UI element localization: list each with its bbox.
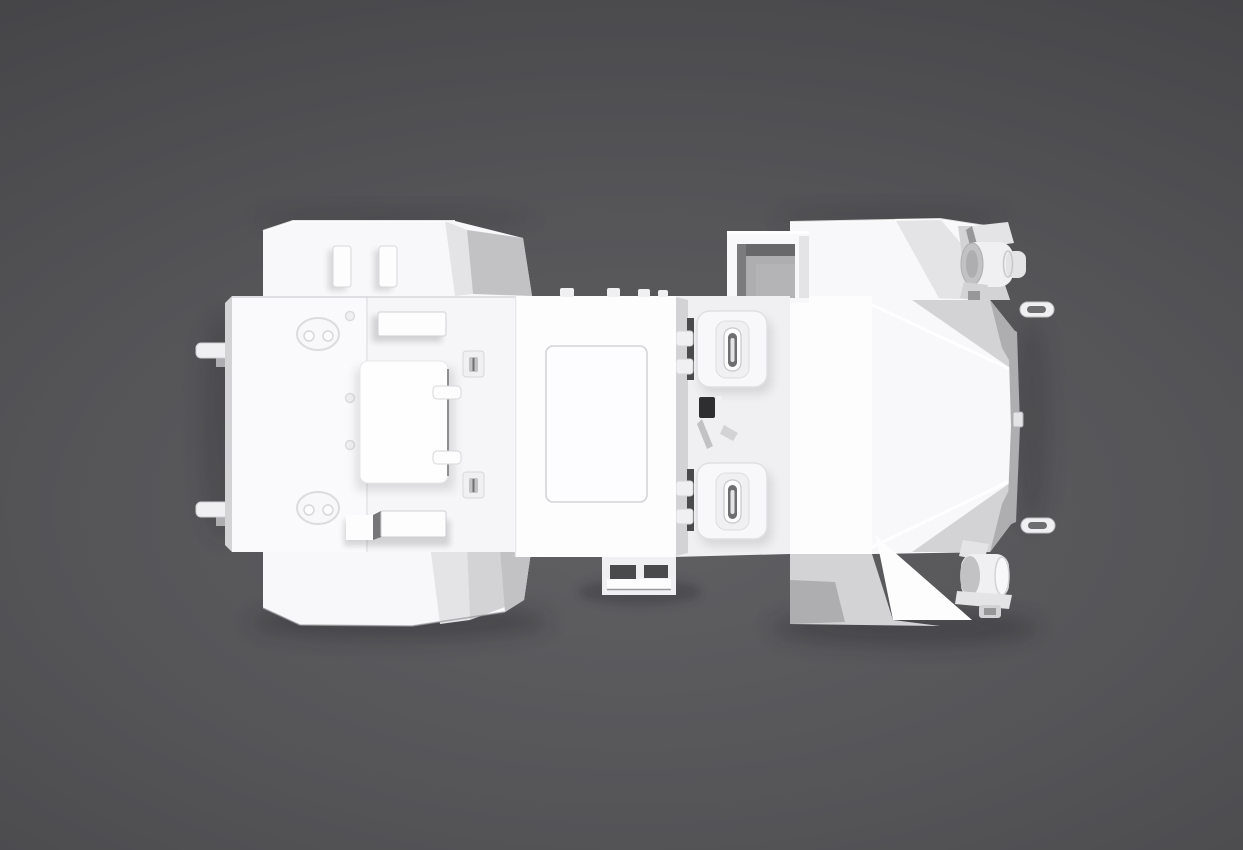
roof-edge-tabs (560, 288, 668, 297)
latch-block-upper (463, 351, 484, 377)
hatch-rear-slot-core (731, 490, 735, 514)
rear-deck (790, 296, 872, 554)
stowage-box-top (378, 312, 446, 336)
roof-tab-4 (658, 290, 668, 297)
plate-bolt-1 (346, 312, 355, 321)
stowage-cube (346, 515, 373, 540)
cabin-roof (515, 288, 676, 595)
plate-bolt-3 (346, 441, 355, 450)
drum-lower-face (960, 556, 980, 596)
roof-tab-2 (607, 288, 620, 297)
light-drum-lower (955, 540, 1012, 618)
vent-recess-floor (756, 264, 795, 298)
step-slot-left (610, 565, 636, 579)
vent-recess-shade-left (737, 244, 746, 298)
rear-handle-upper (1020, 302, 1054, 317)
drum-lower-cap (995, 557, 1009, 595)
hatch-rear-hinge-upper (676, 481, 693, 496)
hatch-front-slot-core (731, 338, 735, 362)
drum-upper-notch (968, 291, 980, 300)
render-canvas (0, 0, 1243, 850)
drum-lower-slot (984, 608, 996, 615)
fender-light-left (333, 246, 351, 287)
periscope-head (699, 397, 715, 418)
roof-tab-3 (638, 289, 650, 297)
lifting-eye-lower-hole-right (323, 505, 333, 515)
plate-bolt-2 (346, 394, 355, 403)
roof-access-panel (546, 346, 647, 502)
plate-side-edge (225, 296, 232, 552)
lifting-eye-upper-hole-right (323, 331, 333, 341)
step-bar (607, 579, 671, 589)
windshield-hinge-upper (433, 386, 461, 399)
top-left-fender (263, 221, 532, 296)
hatch-front-hinge-lower (676, 359, 693, 374)
stowage-cube-side (373, 511, 381, 540)
rear-panel-knob (1013, 412, 1023, 427)
front-plate (196, 296, 515, 552)
lifting-eye-upper (297, 318, 339, 350)
lifting-eye-lower-hole-left (304, 505, 314, 515)
lifting-eye-upper-hole-left (304, 331, 314, 341)
hatch-front-hinge-upper (676, 331, 693, 346)
drum-upper-cap (1006, 251, 1026, 278)
roof-tab-1 (560, 288, 574, 297)
drum-upper-face-inner (966, 250, 978, 278)
rear-hull (790, 296, 1055, 626)
stowage-box-bottom (381, 511, 446, 537)
hatch-rear-hinge-lower (676, 509, 693, 524)
windshield-hatch (360, 361, 448, 483)
windshield-hinge-lower (433, 451, 461, 464)
vent-frame-right (799, 236, 809, 300)
latch-block-lower (463, 472, 484, 498)
fender-light-right (379, 246, 397, 287)
step-slot-right (644, 565, 668, 578)
vehicle-render (0, 0, 1243, 850)
top-left-fender-facet-dark (467, 230, 532, 296)
lifting-eye-lower (297, 492, 339, 524)
engine-vent-opening (727, 231, 809, 303)
rear-step (602, 557, 676, 595)
bottom-left-fender (263, 545, 532, 626)
periscope-post (716, 396, 722, 411)
crew-deck (672, 296, 790, 557)
rear-handle-lower (1021, 518, 1055, 533)
